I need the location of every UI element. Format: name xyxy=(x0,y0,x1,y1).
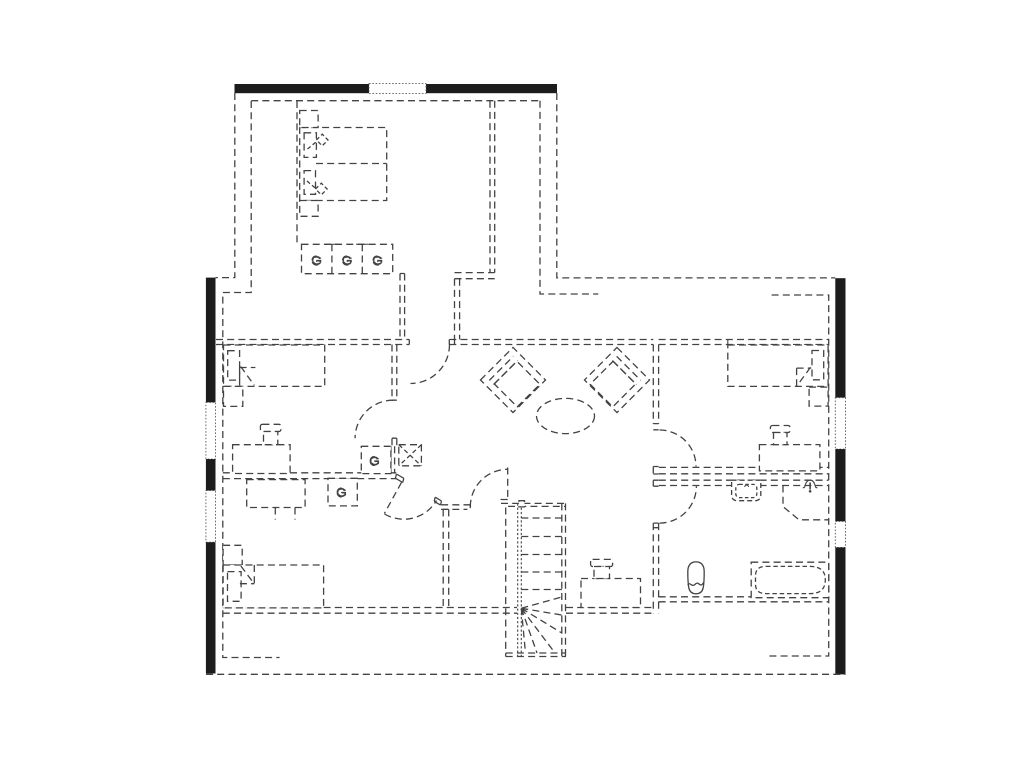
svg-text:G: G xyxy=(372,253,382,268)
svg-text:G: G xyxy=(311,253,321,268)
svg-text:G: G xyxy=(370,455,380,469)
svg-text:G: G xyxy=(337,486,347,500)
svg-text:G: G xyxy=(342,253,352,268)
